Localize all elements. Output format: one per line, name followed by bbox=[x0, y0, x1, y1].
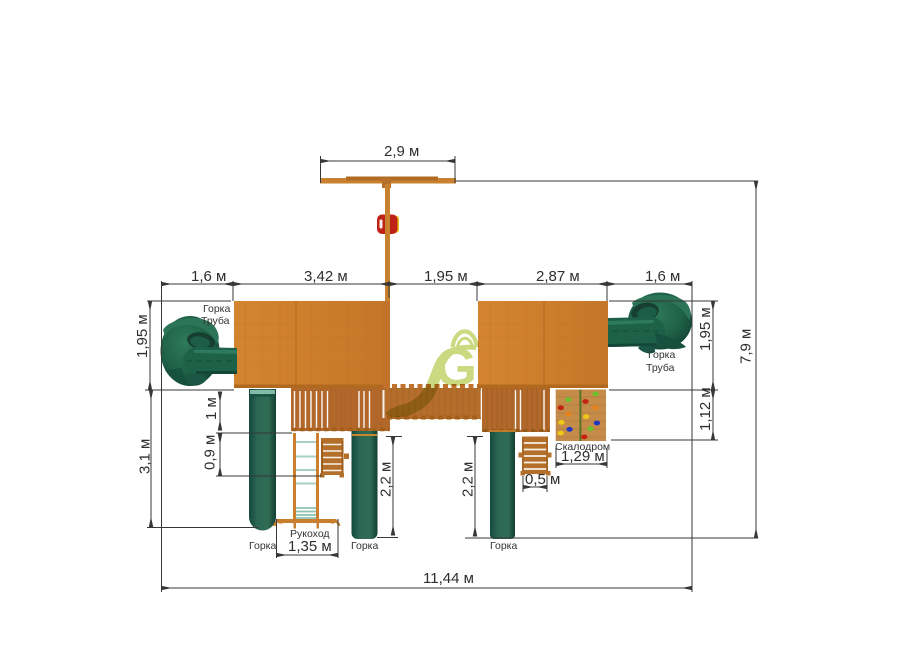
svg-text:1,29 м: 1,29 м bbox=[561, 448, 605, 465]
svg-text:Горка: Горка bbox=[249, 540, 276, 552]
svg-text:1,95 м: 1,95 м bbox=[424, 268, 468, 285]
svg-text:2,2 м: 2,2 м bbox=[460, 462, 477, 497]
svg-text:1,95 м: 1,95 м bbox=[134, 314, 151, 358]
svg-text:1,6 м: 1,6 м bbox=[645, 268, 680, 285]
svg-text:7,9 м: 7,9 м bbox=[738, 329, 755, 364]
svg-text:м: м bbox=[550, 471, 560, 488]
svg-text:2,2 м: 2,2 м bbox=[378, 462, 395, 497]
svg-text:2,87 м: 2,87 м bbox=[536, 268, 580, 285]
svg-text:1 м: 1 м bbox=[203, 397, 220, 420]
svg-text:1,12 м: 1,12 м bbox=[697, 387, 714, 431]
svg-text:1,35 м: 1,35 м bbox=[288, 538, 332, 555]
svg-text:0,5: 0,5 bbox=[525, 471, 546, 488]
svg-text:1,6 м: 1,6 м bbox=[191, 268, 226, 285]
svg-text:Горка: Горка bbox=[490, 540, 517, 552]
svg-text:2,9 м: 2,9 м bbox=[384, 143, 419, 160]
svg-text:Горка: Горка bbox=[351, 540, 378, 552]
svg-text:3,1 м: 3,1 м bbox=[137, 439, 154, 474]
svg-text:1,95 м: 1,95 м bbox=[697, 307, 714, 351]
svg-text:3,42 м: 3,42 м bbox=[304, 268, 348, 285]
svg-text:ГоркаТруба: ГоркаТруба bbox=[201, 303, 230, 327]
svg-text:11,44 м: 11,44 м bbox=[423, 570, 474, 587]
svg-text:ГоркаТруба: ГоркаТруба bbox=[646, 349, 675, 374]
svg-text:0,9 м: 0,9 м bbox=[202, 435, 219, 470]
